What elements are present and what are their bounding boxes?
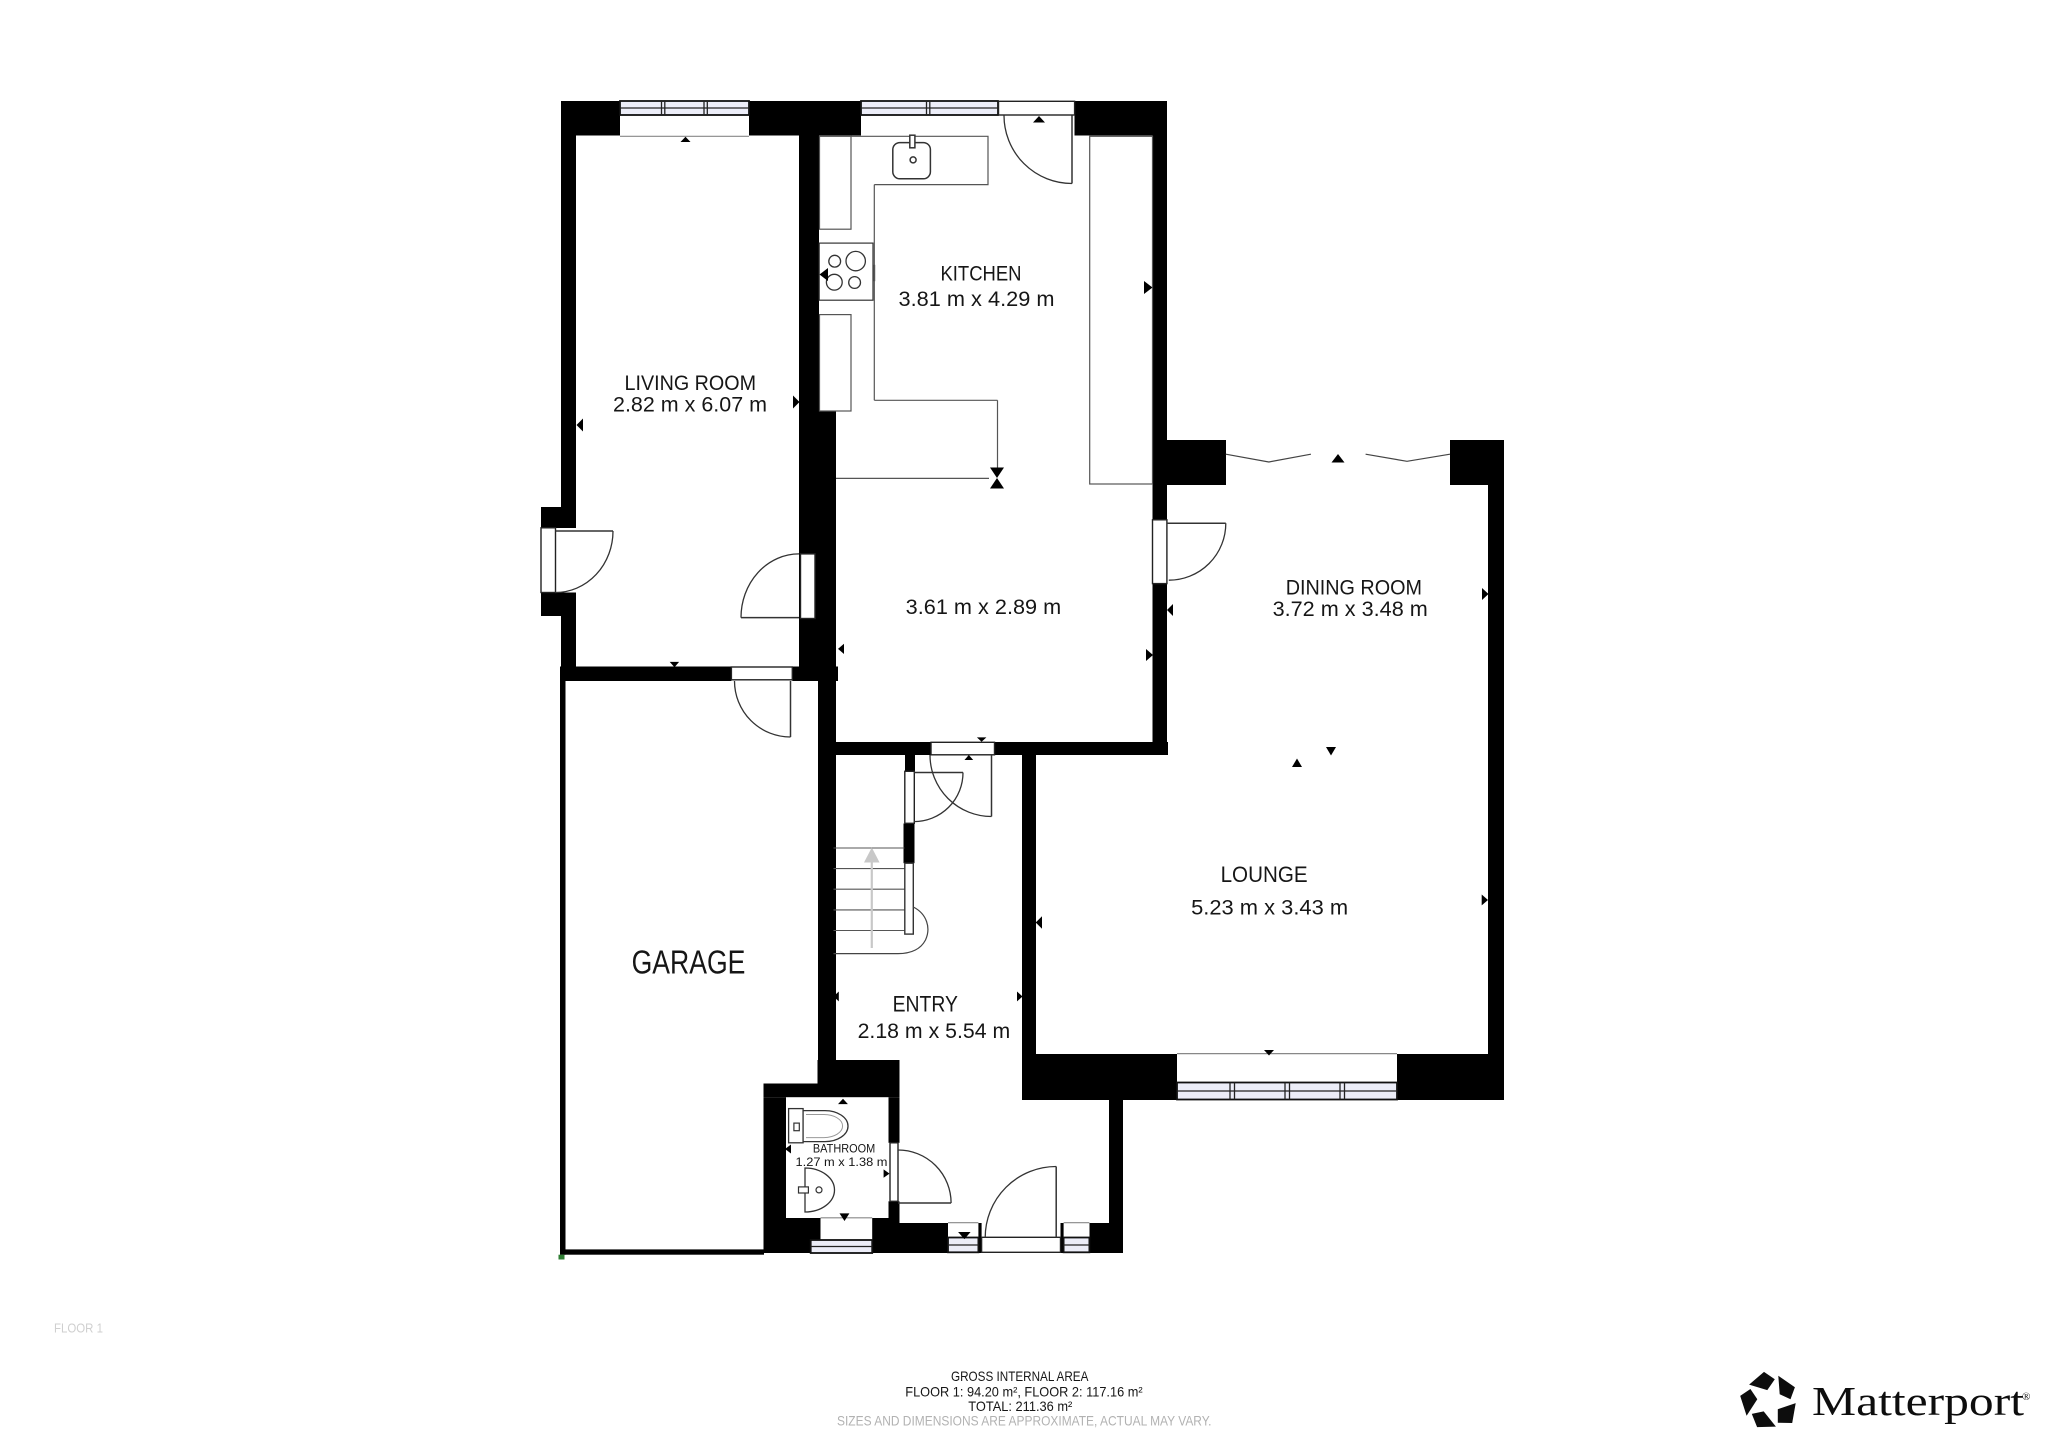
svg-text:ENTRY: ENTRY: [893, 992, 959, 1017]
svg-text:1.27 m x 1.38 m: 1.27 m x 1.38 m: [796, 1157, 888, 1169]
svg-text:5.23 m x 3.43 m: 5.23 m x 3.43 m: [1191, 896, 1348, 920]
svg-text:GROSS INTERNAL AREA: GROSS INTERNAL AREA: [951, 1369, 1089, 1384]
svg-text:GARAGE: GARAGE: [632, 944, 746, 981]
svg-text:FLOOR 1: FLOOR 1: [54, 1322, 103, 1336]
svg-text:®: ®: [2022, 1391, 2030, 1403]
svg-text:Matterport: Matterport: [1812, 1378, 2025, 1424]
svg-text:LOUNGE: LOUNGE: [1221, 862, 1308, 887]
svg-text:2.18 m x 5.54 m: 2.18 m x 5.54 m: [858, 1019, 1011, 1043]
svg-text:LIVING ROOM: LIVING ROOM: [625, 371, 757, 395]
svg-text:FLOOR 1: 94.20 m², FLOOR 2: 11: FLOOR 1: 94.20 m², FLOOR 2: 117.16 m²: [905, 1385, 1143, 1400]
svg-text:DINING ROOM: DINING ROOM: [1286, 575, 1422, 599]
svg-text:2.82 m x 6.07 m: 2.82 m x 6.07 m: [613, 393, 767, 417]
svg-text:3.72 m x 3.48 m: 3.72 m x 3.48 m: [1273, 597, 1428, 621]
svg-text:TOTAL: 211.36 m²: TOTAL: 211.36 m²: [968, 1399, 1072, 1414]
svg-text:3.81 m x 4.29 m: 3.81 m x 4.29 m: [899, 287, 1055, 311]
svg-text:BATHROOM: BATHROOM: [813, 1144, 875, 1156]
svg-text:SIZES AND DIMENSIONS ARE APPRO: SIZES AND DIMENSIONS ARE APPROXIMATE, AC…: [837, 1414, 1212, 1429]
svg-text:3.61 m x 2.89 m: 3.61 m x 2.89 m: [906, 595, 1061, 619]
svg-text:KITCHEN: KITCHEN: [941, 261, 1022, 285]
